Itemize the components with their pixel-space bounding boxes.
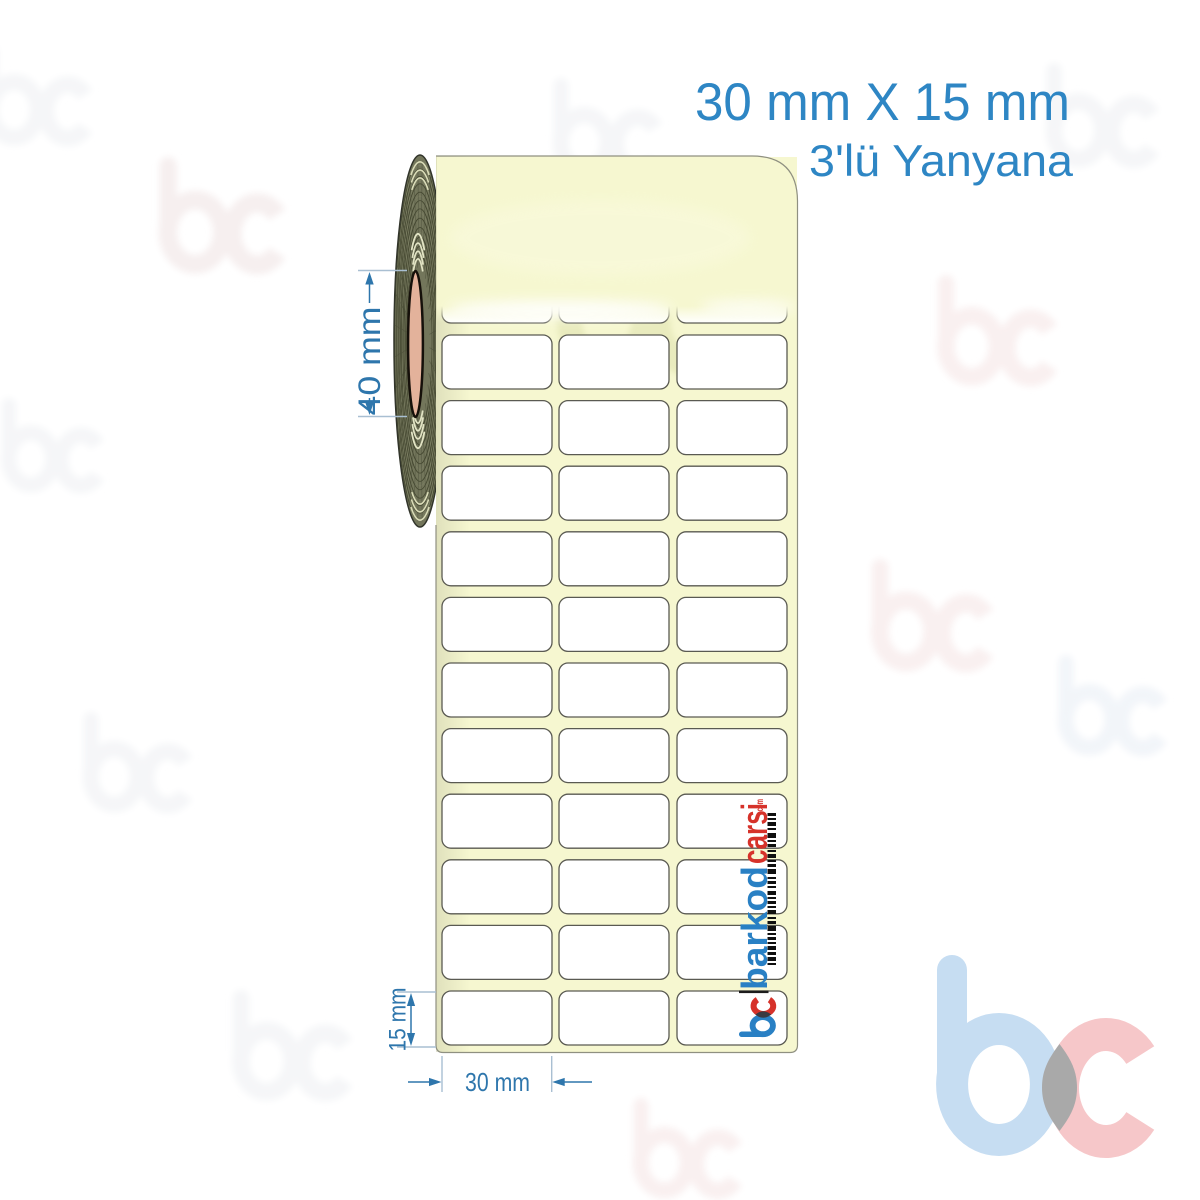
svg-text:30 mm X 15 mm: 30 mm X 15 mm: [695, 73, 1070, 132]
svg-text:3'lü Yanyana: 3'lü Yanyana: [809, 137, 1073, 186]
svg-text:.com: .com: [755, 799, 766, 813]
svg-text:30 mm: 30 mm: [465, 1067, 530, 1097]
svg-text:40 mm: 40 mm: [351, 307, 387, 416]
svg-text:15 mm: 15 mm: [385, 988, 412, 1052]
